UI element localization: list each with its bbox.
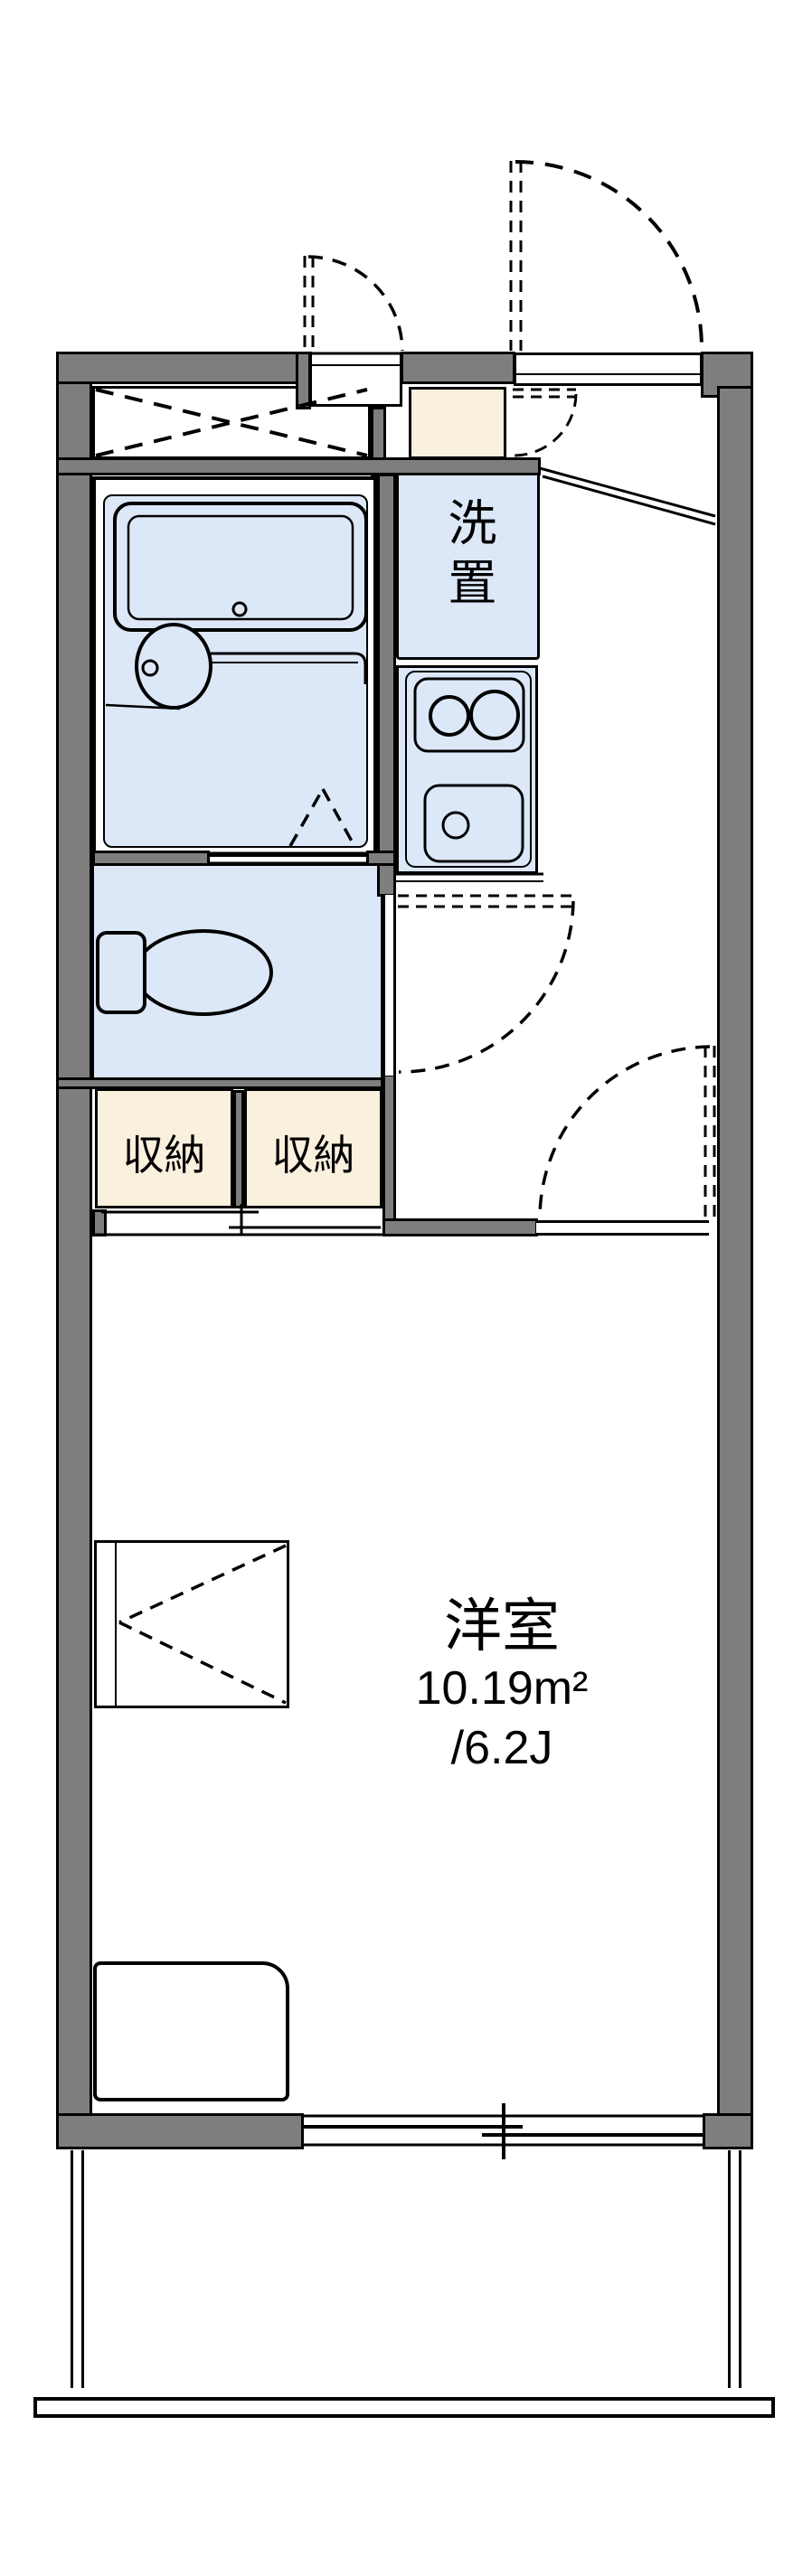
wall-left (56, 352, 92, 2149)
bathroom-floor (103, 494, 368, 848)
closet-sliding-doors (92, 1204, 382, 1236)
kitchen-unit-box (396, 665, 538, 874)
entrance-door-swing (511, 161, 702, 374)
wall-bath-bottom-left (92, 851, 210, 866)
wall-right (717, 386, 753, 2149)
room-door-sill (536, 1220, 709, 1236)
storage-left-label: 収納 (95, 1123, 233, 1182)
balcony-railing-bar (33, 2397, 775, 2418)
toilet-door-swing (398, 896, 573, 1072)
balcony-rail-right (728, 2150, 741, 2388)
desk-counter (94, 1540, 289, 1708)
utility-door-swing (305, 256, 402, 365)
washer-space-label: 洗置 (439, 497, 496, 651)
wall-top-left-segment (56, 352, 312, 384)
wall-room-door-band (382, 1218, 538, 1236)
bed (93, 1961, 289, 2101)
balcony-rail-left (71, 2150, 84, 2388)
wall-toilet-bottom (56, 1077, 383, 1089)
room-name-label: 洋室 (389, 1580, 615, 1663)
entrance-door-sill (514, 353, 703, 386)
wall-storage-right (382, 1074, 396, 1236)
entrance-step-line (540, 468, 715, 524)
wall-bath-right (377, 474, 396, 897)
room-area-m2-label: 10.19m² (380, 1661, 624, 1716)
wall-top-middle-segment (401, 352, 515, 384)
utility-door-niche (309, 354, 402, 407)
wall-band-upper (56, 457, 541, 475)
storage-right-label: 収納 (244, 1123, 382, 1182)
wall-closet-pillar (92, 1209, 107, 1236)
wall-storage-divider (233, 1090, 244, 1208)
shoe-cabinet-box (409, 387, 506, 459)
balcony-sliding-window (304, 2103, 704, 2159)
wall-bottom-left-segment (56, 2113, 304, 2149)
toilet-door-closed (382, 895, 396, 1076)
wall-bath-bottom-right (366, 851, 396, 866)
wall-bottom-right-corner (703, 2113, 753, 2149)
room-area-tatami-label: /6.2J (380, 1721, 624, 1775)
shoe-cabinet-door-swing (513, 390, 576, 456)
toilet-room-floor (92, 864, 382, 1081)
floorplan: 洗置 収納 収納 洋室 10.19m² /6.2J (0, 0, 812, 2576)
room-door-swing (540, 1046, 714, 1218)
